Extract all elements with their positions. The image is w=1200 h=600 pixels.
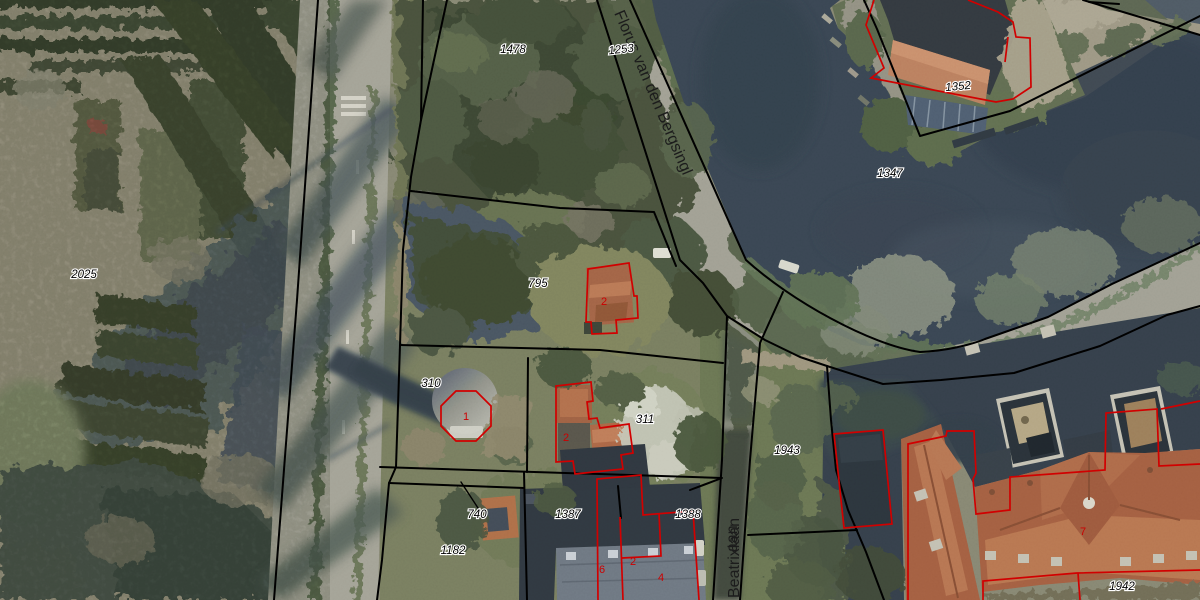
svg-text:1478: 1478	[500, 44, 526, 56]
svg-text:1943: 1943	[774, 445, 800, 457]
svg-text:2: 2	[630, 556, 636, 568]
svg-text:7: 7	[1080, 526, 1086, 538]
svg-text:1182: 1182	[441, 545, 466, 557]
svg-text:1352: 1352	[945, 80, 972, 94]
svg-text:1387: 1387	[555, 509, 581, 521]
svg-text:1942: 1942	[1109, 581, 1135, 593]
svg-text:2: 2	[563, 432, 569, 444]
svg-text:1388: 1388	[675, 509, 701, 521]
svg-text:740: 740	[467, 509, 487, 521]
svg-text:4: 4	[658, 572, 664, 584]
svg-text:1347: 1347	[877, 168, 903, 180]
svg-text:795: 795	[528, 278, 548, 290]
svg-text:6: 6	[599, 564, 605, 576]
svg-text:aan: aan	[724, 525, 741, 552]
svg-text:2: 2	[601, 296, 607, 308]
svg-text:311: 311	[636, 414, 654, 426]
svg-text:310: 310	[421, 378, 441, 390]
svg-text:1: 1	[463, 411, 469, 423]
svg-text:2025: 2025	[70, 269, 97, 281]
